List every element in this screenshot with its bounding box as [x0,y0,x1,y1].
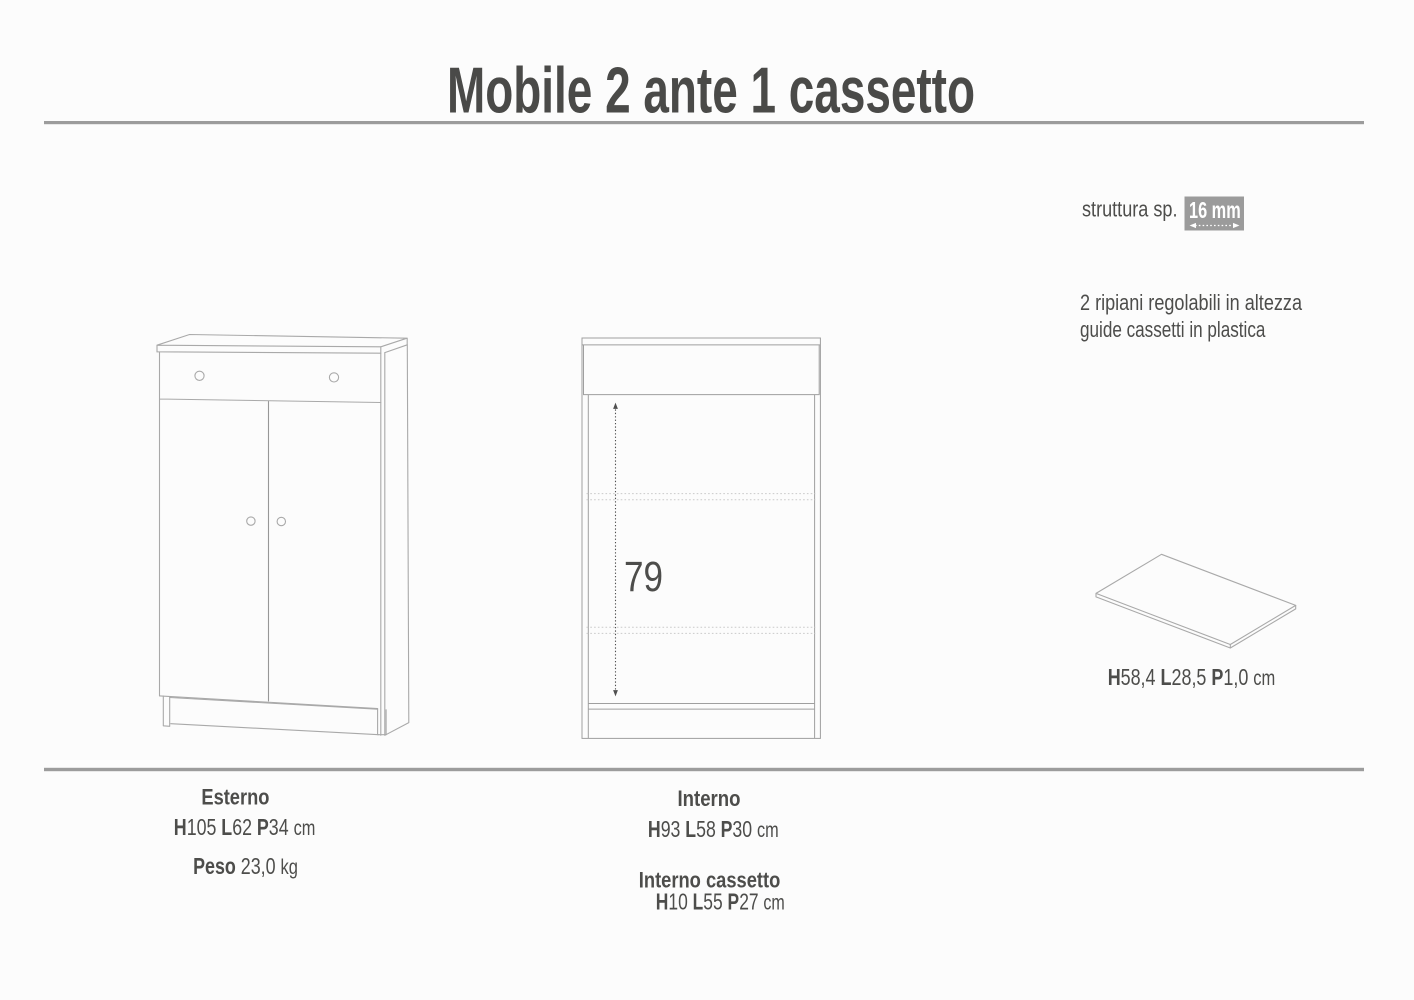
svg-text:62: 62 [232,814,252,840]
svg-text:cm: cm [1253,667,1275,690]
svg-text:58: 58 [696,816,716,842]
svg-text:Interno: Interno [678,786,741,811]
svg-text:cm: cm [763,892,784,915]
svg-text:L: L [1161,664,1172,690]
svg-text:H: H [1108,664,1121,690]
svg-text:16 mm: 16 mm [1189,197,1241,223]
svg-text:2 ripiani regolabili in altezz: 2 ripiani regolabili in altezza [1080,290,1302,315]
svg-text:P: P [1211,664,1223,690]
svg-text:Peso: Peso [193,853,236,879]
svg-text:93: 93 [661,816,681,842]
svg-text:P: P [257,814,269,840]
svg-text:guide cassetti in plastica: guide cassetti in plastica [1080,317,1266,342]
svg-text:10: 10 [668,889,687,915]
svg-text:27: 27 [739,889,758,915]
svg-text:H: H [174,814,187,840]
svg-text:Mobile 2 ante 1 cassetto: Mobile 2 ante 1 cassetto [447,54,975,127]
svg-text:79: 79 [624,553,663,600]
svg-text:34: 34 [269,814,289,840]
svg-text:P: P [728,889,740,915]
svg-text:H: H [656,889,669,915]
svg-text:L: L [221,814,232,840]
svg-text:L: L [685,816,696,842]
svg-text:Esterno: Esterno [201,785,269,810]
svg-text:55: 55 [703,889,722,915]
svg-text:struttura sp.: struttura sp. [1082,197,1178,222]
svg-text:1,0: 1,0 [1223,664,1248,690]
svg-text:kg: kg [281,856,298,879]
svg-text:30: 30 [732,816,752,842]
svg-text:cm: cm [757,819,779,842]
svg-text:L: L [693,889,704,915]
svg-text:28,5: 28,5 [1172,664,1207,690]
svg-text:H: H [648,816,661,842]
svg-text:58,4: 58,4 [1121,664,1156,690]
svg-text:cm: cm [294,817,316,840]
svg-text:P: P [721,816,733,842]
svg-text:105: 105 [187,814,217,840]
svg-text:23,0: 23,0 [241,853,276,879]
